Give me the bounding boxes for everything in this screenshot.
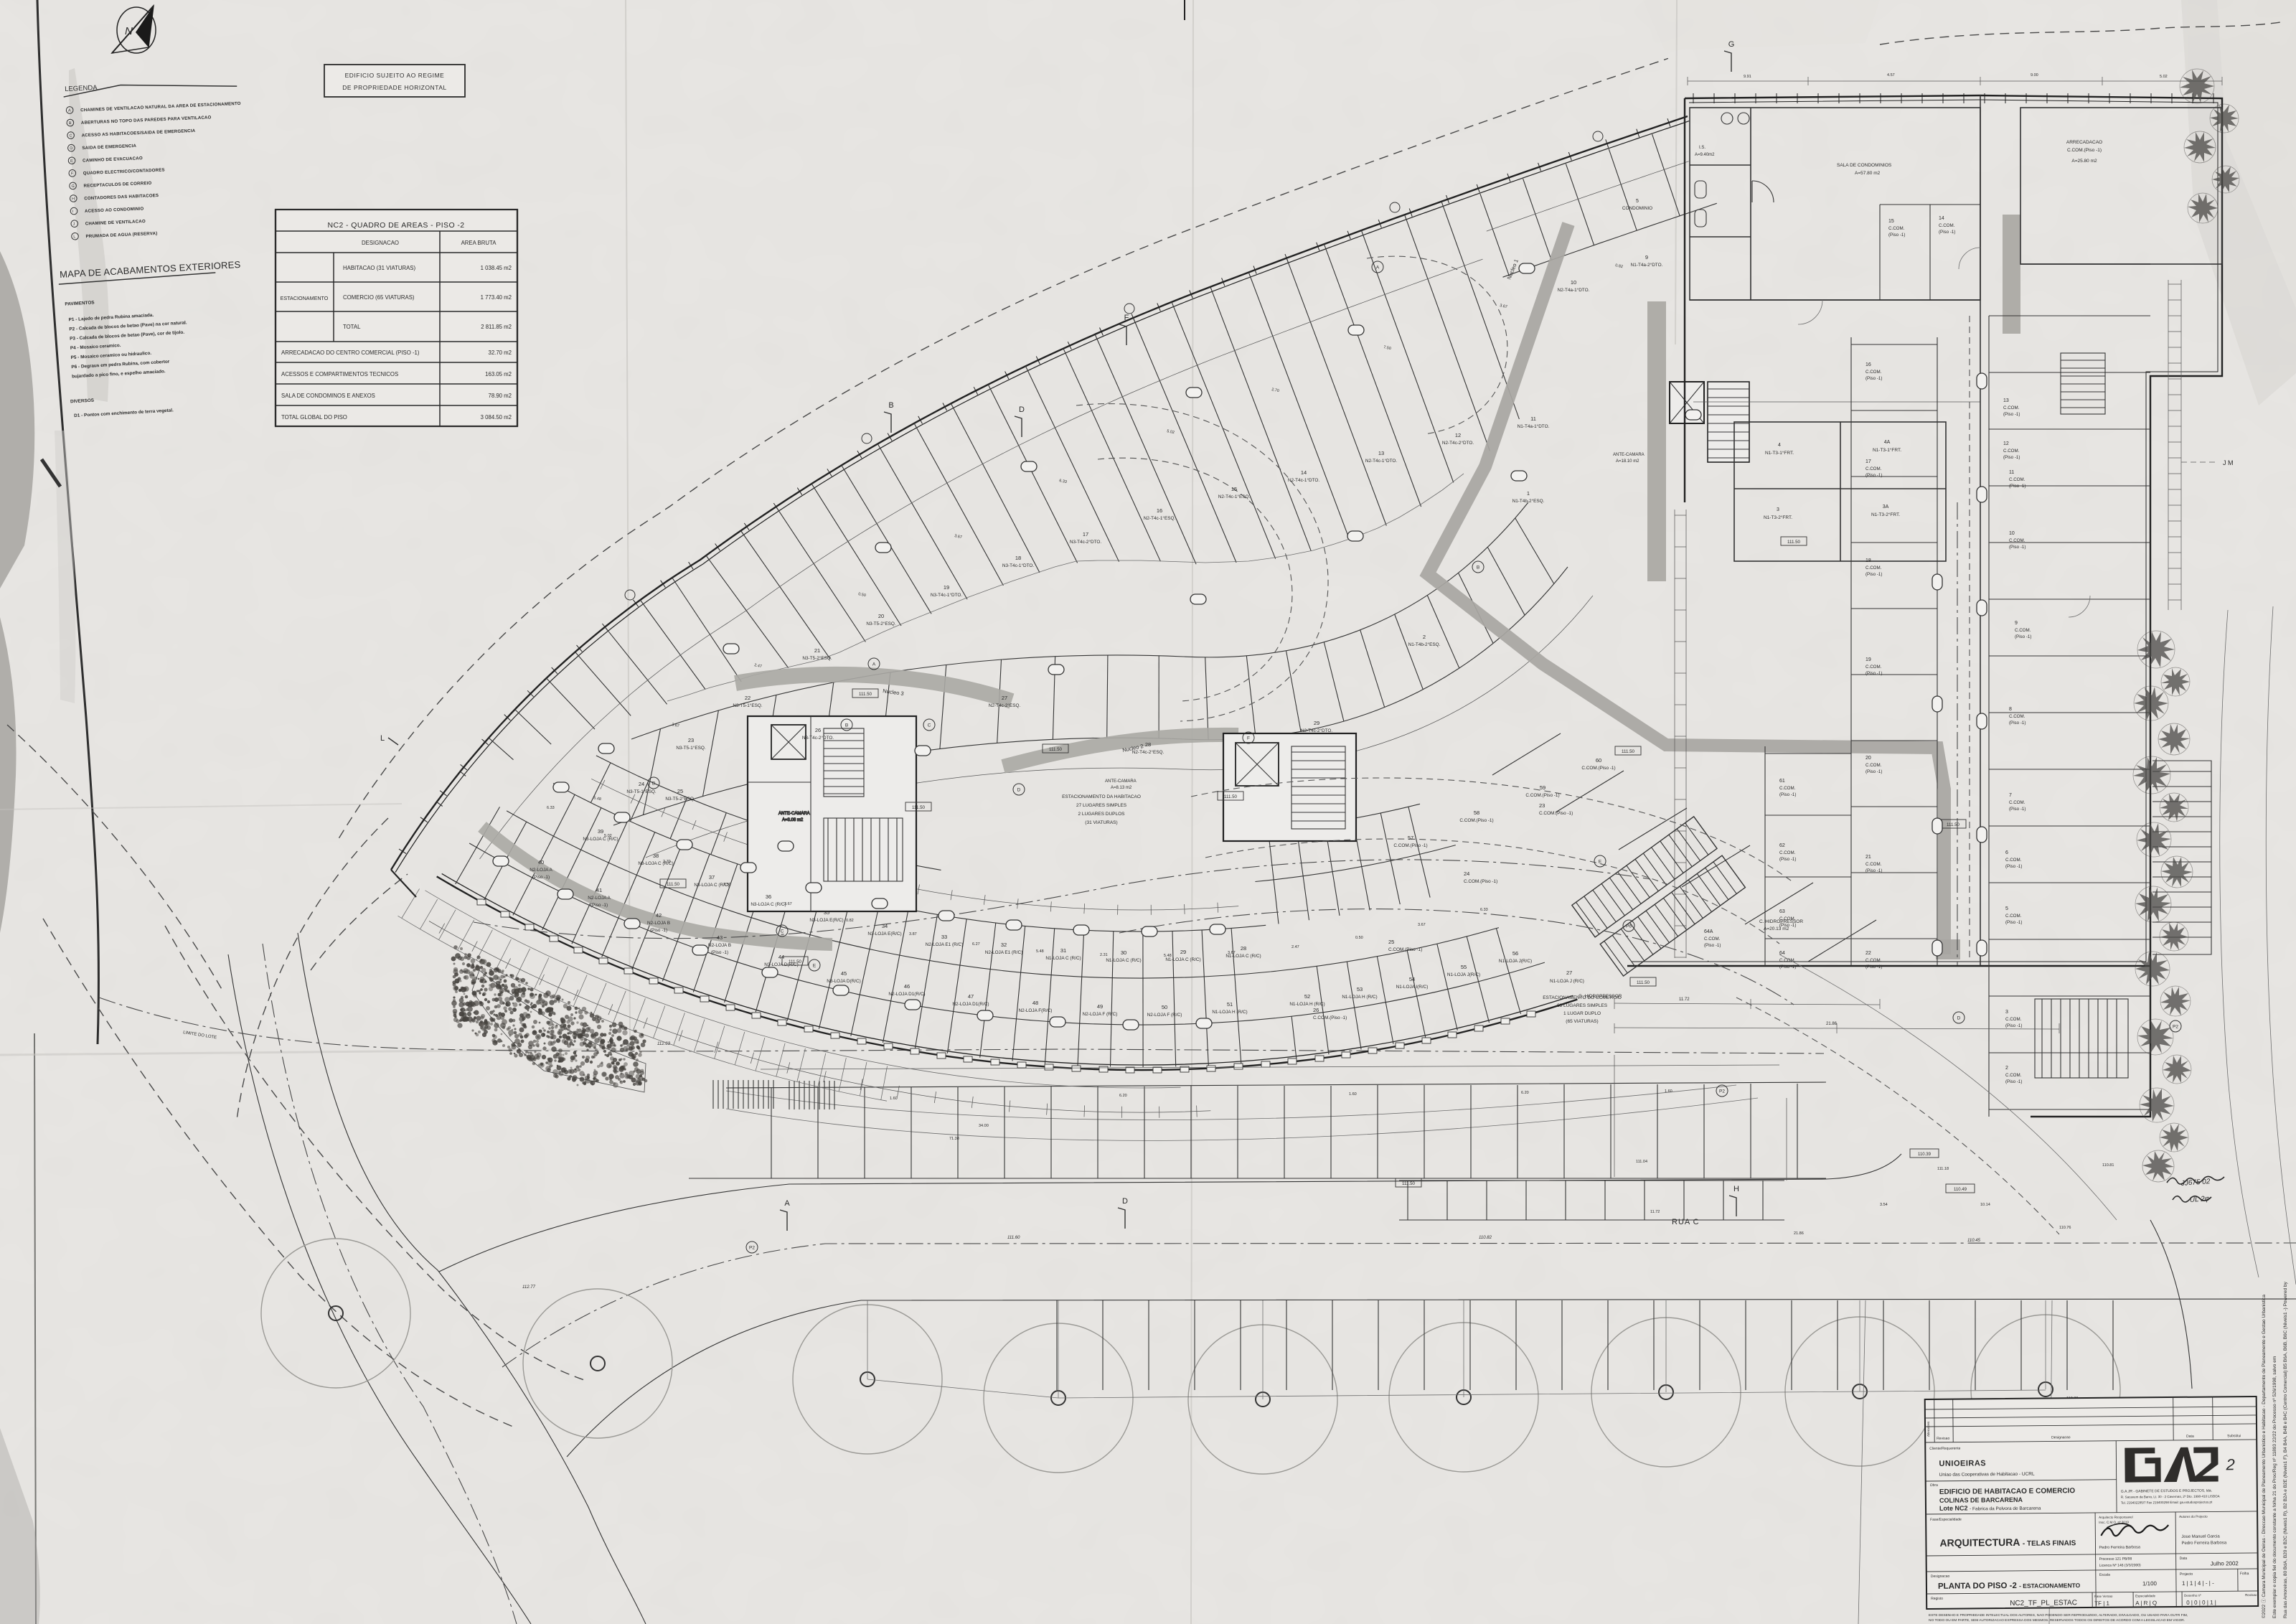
svg-text:1 LUGAR DUPLO: 1 LUGAR DUPLO xyxy=(1563,1011,1601,1016)
svg-text:22: 22 xyxy=(745,695,751,701)
svg-text:36: 36 xyxy=(766,893,771,900)
svg-text:C.COM.(Piso -1): C.COM.(Piso -1) xyxy=(1388,947,1422,952)
svg-text:78.90 m2: 78.90 m2 xyxy=(488,393,512,399)
svg-text:C.COM.: C.COM. xyxy=(1939,223,1955,228)
svg-text:39: 39 xyxy=(598,828,603,835)
svg-text:N2-LOJA E1 (R/C): N2-LOJA E1 (R/C) xyxy=(926,942,964,947)
svg-text:111.18: 111.18 xyxy=(1937,1167,1949,1171)
svg-text:6.27: 6.27 xyxy=(972,942,980,947)
svg-text:N2-LOJA A: N2-LOJA A xyxy=(530,868,552,873)
svg-text:111.50: 111.50 xyxy=(1402,1181,1416,1186)
svg-text:110.82: 110.82 xyxy=(1479,1236,1492,1240)
svg-text:17: 17 xyxy=(1865,459,1871,464)
svg-text:(Piso -1): (Piso -1) xyxy=(1865,473,1882,478)
svg-text:12: 12 xyxy=(1455,432,1461,438)
svg-text:A=3.08 m2: A=3.08 m2 xyxy=(782,818,804,822)
svg-text:52: 52 xyxy=(1304,993,1310,1000)
svg-text:H: H xyxy=(1733,1185,1739,1193)
svg-text:C.COM.: C.COM. xyxy=(2005,858,2022,863)
svg-text:C.COM.: C.COM. xyxy=(2009,800,2026,805)
svg-text:1 773.40 m2: 1 773.40 m2 xyxy=(481,294,512,301)
svg-text:N3-T4c-2°DTO.: N3-T4c-2°DTO. xyxy=(802,735,834,741)
svg-text:DE PROPRIEDADE HORIZONTAL: DE PROPRIEDADE HORIZONTAL xyxy=(342,84,447,91)
svg-text:11: 11 xyxy=(1530,416,1536,422)
svg-text:N3-T4c-2°DTO.: N3-T4c-2°DTO. xyxy=(1070,539,1102,545)
svg-text:C.COM.: C.COM. xyxy=(1865,958,1882,963)
svg-text:(Piso -1): (Piso -1) xyxy=(2009,484,2026,489)
svg-text:9.91: 9.91 xyxy=(1744,75,1751,79)
svg-text:CONDOMINIO: CONDOMINIO xyxy=(1622,206,1652,211)
svg-text:C.COM.: C.COM. xyxy=(1865,763,1882,768)
svg-text:2 LUGARES DUPLOS: 2 LUGARES DUPLOS xyxy=(1078,812,1125,817)
svg-text:26: 26 xyxy=(1313,1007,1319,1013)
svg-text:C. HIDROPRESSOR: C. HIDROPRESSOR xyxy=(1759,919,1803,924)
svg-text:N2-T4c-2°DTO.: N2-T4c-2°DTO. xyxy=(1442,440,1474,446)
svg-text:B: B xyxy=(69,121,72,126)
svg-text:C: C xyxy=(928,723,931,728)
svg-text:71.38: 71.38 xyxy=(949,1137,959,1141)
svg-text:3.87: 3.87 xyxy=(909,932,917,937)
svg-text:Escala: Escala xyxy=(2099,1573,2110,1577)
svg-text:9: 9 xyxy=(1645,254,1648,261)
svg-text:1 038.45 m2: 1 038.45 m2 xyxy=(481,265,512,271)
svg-text:5.48: 5.48 xyxy=(1164,954,1172,958)
svg-text:UNIOEIRAS: UNIOEIRAS xyxy=(1939,1459,1986,1468)
svg-text:N1-LOJA C (R/C): N1-LOJA C (R/C) xyxy=(1106,958,1141,963)
svg-text:51: 51 xyxy=(1227,1001,1233,1008)
svg-text:N3-LOJA D(R/C): N3-LOJA D(R/C) xyxy=(827,979,861,984)
svg-text:(Piso -1): (Piso -1) xyxy=(2009,721,2026,726)
svg-text:3: 3 xyxy=(2005,1010,2008,1015)
svg-text:N3-T5-1°ESQ.: N3-T5-1°ESQ. xyxy=(733,703,762,708)
svg-text:TOTAL GLOBAL DO PISO: TOTAL GLOBAL DO PISO xyxy=(281,414,347,421)
svg-text:P2: P2 xyxy=(749,1246,755,1251)
svg-text:Pedro Ferreira Barbosa: Pedro Ferreira Barbosa xyxy=(2099,1545,2140,1550)
svg-text:ARRECADACAO: ARRECADACAO xyxy=(2066,140,2102,145)
svg-text:56: 56 xyxy=(1512,950,1518,957)
svg-text:4: 4 xyxy=(1778,443,1781,448)
svg-text:N1-T4b-2°ESQ.: N1-T4b-2°ESQ. xyxy=(1512,498,1545,504)
svg-text:16: 16 xyxy=(1865,362,1871,367)
svg-text:42: 42 xyxy=(656,912,662,919)
svg-text:ANTE-CAMARA: ANTE-CAMARA xyxy=(1105,779,1137,784)
svg-text:ACESSOS E COMPARTIMENTOS TECNI: ACESSOS E COMPARTIMENTOS TECNICOS xyxy=(281,371,398,377)
svg-text:J: J xyxy=(72,222,75,227)
svg-text:N1-T3-1°FRT.: N1-T3-1°FRT. xyxy=(1873,447,1901,453)
svg-text:DESIGNACAO: DESIGNACAO xyxy=(362,240,399,246)
svg-text:23: 23 xyxy=(1539,802,1545,809)
svg-text:N2-LOJA D1(R/C): N2-LOJA D1(R/C) xyxy=(952,1002,989,1007)
svg-text:33: 33 xyxy=(941,934,947,940)
svg-text:SALA DE CONDOMINIOS: SALA DE CONDOMINIOS xyxy=(1837,163,1892,168)
svg-text:63 LUGARES SIMPLES: 63 LUGARES SIMPLES xyxy=(1557,1003,1608,1008)
svg-text:N1-T3-2°FRT.: N1-T3-2°FRT. xyxy=(1871,512,1900,517)
svg-text:Arquitecto Responsavel: Arquitecto Responsavel xyxy=(2099,1515,2133,1519)
svg-text:N2-T4c-1°ESQ.: N2-T4c-1°ESQ. xyxy=(1218,494,1251,499)
svg-text:32: 32 xyxy=(1001,942,1007,948)
svg-text:111.50: 111.50 xyxy=(1224,794,1238,799)
svg-text:48: 48 xyxy=(1032,1000,1038,1006)
svg-text:37: 37 xyxy=(709,874,715,881)
svg-text:N1-LOJA C (R/C): N1-LOJA C (R/C) xyxy=(1045,956,1081,961)
svg-text:41: 41 xyxy=(596,887,602,893)
svg-text:1 | 1 | 4 | - | -: 1 | 1 | 4 | - | - xyxy=(2182,1580,2214,1586)
svg-text:C.COM.: C.COM. xyxy=(2009,714,2026,719)
svg-text:A=18.10 m2: A=18.10 m2 xyxy=(1616,459,1639,464)
svg-text:P6: P6 xyxy=(1626,924,1632,929)
svg-text:21.86: 21.86 xyxy=(1794,1231,1804,1236)
svg-text:NC2_TF_PL_ESTAC: NC2_TF_PL_ESTAC xyxy=(2010,1599,2077,1607)
svg-text:P2: P2 xyxy=(1719,1089,1725,1094)
svg-text:ESTACIONAMENTO DA HABITACAO: ESTACIONAMENTO DA HABITACAO xyxy=(1062,794,1141,799)
svg-text:EDIFICIO SUJEITO AO REGIME: EDIFICIO SUJEITO AO REGIME xyxy=(345,72,445,79)
svg-text:11.72: 11.72 xyxy=(1679,998,1690,1002)
svg-text:28: 28 xyxy=(1241,945,1246,952)
svg-text:111.04: 111.04 xyxy=(1636,1160,1647,1164)
svg-text:E: E xyxy=(1599,860,1602,865)
svg-text:(Piso -1): (Piso -1) xyxy=(2005,864,2022,869)
svg-text:H: H xyxy=(72,197,75,201)
svg-text:62: 62 xyxy=(1779,843,1785,848)
svg-text:A: A xyxy=(784,1199,790,1208)
svg-text:Substitui: Substitui xyxy=(2227,1434,2241,1438)
svg-text:Registo: Registo xyxy=(1931,1597,1943,1601)
svg-text:27 LUGARES SIMPLES: 27 LUGARES SIMPLES xyxy=(1076,803,1127,808)
svg-text:27: 27 xyxy=(1566,970,1572,976)
svg-text:N2-LOJA E1 (R/C): N2-LOJA E1 (R/C) xyxy=(985,950,1023,955)
svg-text:C.COM.: C.COM. xyxy=(2015,628,2031,633)
svg-text:B: B xyxy=(1477,565,1479,571)
svg-text:(Piso -1): (Piso -1) xyxy=(1779,792,1796,797)
svg-text:(Piso -1): (Piso -1) xyxy=(1779,964,1796,970)
svg-text:N1-T3-2°FRT.: N1-T3-2°FRT. xyxy=(1764,515,1792,520)
svg-text:(Piso -1): (Piso -1) xyxy=(1865,964,1882,970)
svg-text:1.60: 1.60 xyxy=(890,1097,898,1101)
svg-text:Pedro Ferreira Barbosa: Pedro Ferreira Barbosa xyxy=(2181,1541,2226,1546)
svg-text:F: F xyxy=(1124,314,1129,322)
svg-text:2.31: 2.31 xyxy=(1100,953,1108,957)
svg-text:(Piso -1): (Piso -1) xyxy=(2015,634,2031,639)
svg-text:3A: 3A xyxy=(1883,504,1889,510)
svg-text:38: 38 xyxy=(653,853,659,859)
svg-text:6.33: 6.33 xyxy=(547,806,555,810)
svg-text:55: 55 xyxy=(1461,964,1467,970)
svg-text:UL 2φ: UL 2φ xyxy=(2189,1195,2210,1204)
svg-text:ANTE-CAMARA: ANTE-CAMARA xyxy=(778,812,810,816)
svg-text:COLINAS DE BARCARENA: COLINAS DE BARCARENA xyxy=(1939,1496,2023,1504)
svg-text:B: B xyxy=(845,723,848,728)
svg-text:N3-LOJA C (R/C): N3-LOJA C (R/C) xyxy=(583,837,618,842)
svg-text:C.COM.(Piso -1): C.COM.(Piso -1) xyxy=(2067,148,2102,153)
svg-text:Data: Data xyxy=(2186,1435,2194,1439)
svg-text:3.67: 3.67 xyxy=(1418,923,1426,927)
svg-text:C.COM.: C.COM. xyxy=(1888,226,1905,231)
svg-text:N2-T4c-1°DTO.: N2-T4c-1°DTO. xyxy=(1288,477,1320,483)
svg-text:TOTAL: TOTAL xyxy=(343,324,361,330)
svg-text:45: 45 xyxy=(841,970,847,977)
svg-text:Obra: Obra xyxy=(1930,1483,1938,1488)
svg-text:3.67: 3.67 xyxy=(1228,951,1236,955)
svg-text:(Piso -1): (Piso -1) xyxy=(2003,455,2020,460)
svg-text:46: 46 xyxy=(904,983,910,990)
svg-text:0.50: 0.50 xyxy=(1355,936,1363,940)
svg-text:Licenca Nº 146 (3/3/2000): Licenca Nº 146 (3/3/2000) xyxy=(2099,1563,2141,1568)
svg-text:2: 2 xyxy=(2005,1066,2008,1071)
svg-text:111.60: 111.60 xyxy=(1007,1236,1020,1240)
svg-text:N2-LOJA F(R/C): N2-LOJA F(R/C) xyxy=(1019,1008,1053,1013)
svg-text:LEGENDA: LEGENDA xyxy=(65,84,98,93)
svg-text:G: G xyxy=(1728,40,1735,49)
svg-text:57: 57 xyxy=(1408,835,1413,841)
svg-text:N1-LOJA H (R/C): N1-LOJA H (R/C) xyxy=(1342,995,1377,1000)
svg-text:Julho 2002: Julho 2002 xyxy=(2211,1560,2239,1567)
svg-text:11.72: 11.72 xyxy=(1650,1210,1660,1214)
svg-text:111.50: 111.50 xyxy=(1637,980,1650,985)
svg-text:N3-T5-2°ESQ.: N3-T5-2°ESQ. xyxy=(665,796,695,802)
svg-text:13: 13 xyxy=(1378,450,1384,456)
svg-text:(Piso -1): (Piso -1) xyxy=(2003,412,2020,417)
svg-text:D: D xyxy=(1122,1197,1128,1206)
svg-text:10: 10 xyxy=(2009,531,2015,536)
svg-text:N1-LOJA C (R/C): N1-LOJA C (R/C) xyxy=(1165,957,1200,962)
svg-text:111.50: 111.50 xyxy=(1622,749,1635,754)
svg-text:6.20: 6.20 xyxy=(1521,1091,1529,1095)
svg-text:C.COM.(Piso -1): C.COM.(Piso -1) xyxy=(1313,1015,1347,1020)
svg-text:C.COM.: C.COM. xyxy=(1865,466,1882,471)
svg-text:7: 7 xyxy=(2009,793,2012,798)
svg-text:18: 18 xyxy=(1865,558,1871,563)
svg-text:0.82: 0.82 xyxy=(846,919,854,923)
svg-text:1/100: 1/100 xyxy=(2142,1580,2158,1587)
svg-text:C.COM.(Piso -1): C.COM.(Piso -1) xyxy=(1393,843,1427,848)
svg-text:(65 VIATURAS): (65 VIATURAS) xyxy=(1566,1019,1598,1024)
svg-text:2: 2 xyxy=(1423,634,1426,640)
svg-text:111.50: 111.50 xyxy=(1787,540,1801,545)
svg-text:29: 29 xyxy=(1314,720,1319,726)
svg-text:ESTACIONAMENTO DO COMERCIO: ESTACIONAMENTO DO COMERCIO xyxy=(1543,995,1622,1000)
svg-text:10: 10 xyxy=(1571,279,1576,286)
svg-text:5: 5 xyxy=(2005,906,2008,911)
svg-text:N2-T4c-1°DTO.: N2-T4c-1°DTO. xyxy=(1365,458,1398,464)
svg-text:10.14: 10.14 xyxy=(1980,1203,1990,1207)
svg-text:A=57.80 m2: A=57.80 m2 xyxy=(1855,171,1881,176)
svg-text:29: 29 xyxy=(1180,949,1186,955)
svg-text:N2-LOJA F (R/C): N2-LOJA F (R/C) xyxy=(1147,1013,1182,1018)
svg-text:2: 2 xyxy=(2225,1455,2234,1473)
svg-text:N1-T4a-2°DTO.: N1-T4a-2°DTO. xyxy=(1631,262,1663,268)
svg-text:C.COM.: C.COM. xyxy=(1779,786,1796,791)
svg-text:32.70 m2: 32.70 m2 xyxy=(488,349,512,356)
svg-text:E: E xyxy=(70,159,73,164)
svg-text:19: 19 xyxy=(944,584,949,591)
svg-text:A | R | Q: A | R | Q xyxy=(2135,1600,2157,1606)
svg-text:(Piso -1): (Piso -1) xyxy=(591,903,608,908)
svg-text:21: 21 xyxy=(814,647,820,654)
svg-text:N3-T4c-1°DTO.: N3-T4c-1°DTO. xyxy=(1002,563,1035,568)
svg-text:24: 24 xyxy=(1464,870,1469,877)
svg-text:2.47: 2.47 xyxy=(1291,945,1299,949)
svg-text:6.20: 6.20 xyxy=(1119,1094,1127,1098)
svg-text:Alteracoes: Alteracoes xyxy=(1926,1421,1930,1437)
svg-text:C.COM.(Piso -1): C.COM.(Piso -1) xyxy=(1464,879,1497,884)
svg-text:Rua das Amoreiras, 80 BdA, B2: Rua das Amoreiras, 80 BdA, B20 e B2C (Ni… xyxy=(2283,1281,2288,1618)
svg-text:111.50: 111.50 xyxy=(859,692,872,697)
svg-text:20: 20 xyxy=(1865,756,1871,761)
svg-text:21.86: 21.86 xyxy=(1826,1022,1838,1026)
svg-text:C.COM.: C.COM. xyxy=(2005,914,2022,919)
svg-text:L: L xyxy=(73,235,75,239)
svg-text:Este exemplar e copia fiel do: Este exemplar e copia fiel do documento … xyxy=(2272,1356,2277,1618)
svg-text:4.57: 4.57 xyxy=(1887,73,1895,78)
svg-text:5.48: 5.48 xyxy=(1036,949,1044,954)
svg-text:(Piso -1): (Piso -1) xyxy=(2005,1023,2022,1028)
svg-text:23: 23 xyxy=(688,737,694,743)
svg-text:30: 30 xyxy=(1121,949,1126,956)
svg-text:N2-LOJA F (R/C): N2-LOJA F (R/C) xyxy=(1083,1012,1118,1017)
svg-text:C.COM.(Piso -1): C.COM.(Piso -1) xyxy=(1581,766,1615,771)
svg-text:9.00: 9.00 xyxy=(2031,73,2038,78)
svg-text:C.COM.: C.COM. xyxy=(2009,538,2026,543)
svg-text:C: C xyxy=(781,929,784,934)
svg-text:17: 17 xyxy=(1083,531,1088,538)
svg-text:26: 26 xyxy=(815,727,821,733)
svg-text:110.76: 110.76 xyxy=(2059,1226,2071,1230)
svg-text:(Piso -1): (Piso -1) xyxy=(1939,230,1955,235)
svg-text:63: 63 xyxy=(1779,909,1785,914)
svg-text:Desenho nº: Desenho nº xyxy=(2184,1594,2201,1597)
svg-text:TF | 1: TF | 1 xyxy=(2094,1600,2109,1607)
svg-text:N2-T4c-2°DTO.: N2-T4c-2°DTO. xyxy=(1301,728,1333,733)
svg-text:31: 31 xyxy=(1060,947,1066,954)
svg-text:N1-T3-1°FRT.: N1-T3-1°FRT. xyxy=(1765,450,1794,456)
svg-text:21: 21 xyxy=(1865,855,1871,860)
svg-text:(Piso -1): (Piso -1) xyxy=(1865,572,1882,577)
svg-text:(Piso -1): (Piso -1) xyxy=(1865,671,1882,676)
svg-text:A: A xyxy=(1376,266,1380,271)
svg-text:8: 8 xyxy=(2009,707,2012,712)
svg-text:6: 6 xyxy=(2005,850,2008,855)
svg-text:1: 1 xyxy=(1527,490,1530,497)
svg-text:C.COM.: C.COM. xyxy=(2009,477,2026,482)
svg-text:111.50: 111.50 xyxy=(912,805,926,810)
svg-text:50: 50 xyxy=(1162,1004,1167,1010)
svg-text:C.COM.(Piso -1): C.COM.(Piso -1) xyxy=(1459,818,1493,823)
svg-text:N2-LOJA B: N2-LOJA B xyxy=(708,943,731,948)
svg-text:1.60: 1.60 xyxy=(1665,1089,1672,1094)
svg-text:54: 54 xyxy=(1409,976,1415,982)
svg-text:N2-LOJA D1(R/C): N2-LOJA D1(R/C) xyxy=(888,992,925,997)
svg-text:22: 22 xyxy=(1865,951,1871,956)
svg-text:(Piso -1): (Piso -1) xyxy=(650,928,667,933)
svg-text:C.COM.: C.COM. xyxy=(2003,405,2020,410)
svg-text:N3-T5-1°ESQ.: N3-T5-1°ESQ. xyxy=(676,745,705,751)
svg-text:N1-LOJA J (R/C): N1-LOJA J (R/C) xyxy=(1550,979,1584,984)
svg-text:N3-T5-1°ESQ.: N3-T5-1°ESQ. xyxy=(626,789,656,794)
svg-text:111.50: 111.50 xyxy=(1049,747,1063,752)
svg-text:C.COM.(Piso -1): C.COM.(Piso -1) xyxy=(1539,811,1573,816)
svg-text:N: N xyxy=(125,25,133,37)
svg-text:AREA BRUTA: AREA BRUTA xyxy=(461,240,497,246)
svg-text:Fase/Especialidade: Fase/Especialidade xyxy=(1930,1518,1962,1522)
svg-text:Fase Versao: Fase Versao xyxy=(2094,1595,2113,1598)
svg-text:(Piso -1): (Piso -1) xyxy=(2009,807,2026,812)
svg-text:SALA DE CONDOMINOS E ANEXOS: SALA DE CONDOMINOS E ANEXOS xyxy=(281,393,375,399)
svg-text:58: 58 xyxy=(1474,809,1479,816)
svg-text:A: A xyxy=(68,108,71,113)
svg-text:NO TODO OU EM PARTE, SEM AUTOR: NO TODO OU EM PARTE, SEM AUTORIZACAO EXP… xyxy=(1929,1618,2185,1623)
svg-text:16: 16 xyxy=(1157,507,1162,514)
svg-text:28: 28 xyxy=(1145,741,1151,748)
svg-text:3.67: 3.67 xyxy=(784,902,792,906)
svg-text:EDIFICIO DE HABITACAO E COMERC: EDIFICIO DE HABITACAO E COMERCIO xyxy=(1939,1487,2076,1496)
svg-text:Revisao: Revisao xyxy=(2245,1593,2257,1597)
svg-text:2 811.85 m2: 2 811.85 m2 xyxy=(481,324,512,330)
svg-text:D: D xyxy=(1019,405,1025,414)
svg-text:27: 27 xyxy=(1002,695,1007,701)
svg-text:(Piso -1): (Piso -1) xyxy=(2005,920,2022,925)
svg-text:110.45: 110.45 xyxy=(1967,1239,1981,1243)
svg-text:N1-LOJA I(R/C): N1-LOJA I(R/C) xyxy=(1396,985,1429,990)
svg-text:NC2 - QUADRO DE AREAS - PISO -: NC2 - QUADRO DE AREAS - PISO -2 xyxy=(328,221,465,230)
svg-text:N3-LOJA E(R/C): N3-LOJA E(R/C) xyxy=(867,931,901,937)
svg-text:20: 20 xyxy=(878,613,884,619)
svg-text:N1-T4a-1°DTO.: N1-T4a-1°DTO. xyxy=(1518,423,1550,429)
svg-text:Designacao: Designacao xyxy=(1931,1574,1950,1579)
svg-text:110.49: 110.49 xyxy=(1954,1188,1967,1192)
svg-text:11: 11 xyxy=(2009,470,2014,475)
svg-text:163.05 m2: 163.05 m2 xyxy=(485,371,512,377)
svg-text:Cliente/Requerente: Cliente/Requerente xyxy=(1929,1447,1960,1451)
svg-text:A=25.80 m2: A=25.80 m2 xyxy=(2071,159,2097,164)
svg-text:111.50: 111.50 xyxy=(1947,822,1960,827)
svg-text:40: 40 xyxy=(538,859,544,865)
svg-text:110.39: 110.39 xyxy=(1918,1153,1932,1157)
svg-text:D: D xyxy=(70,146,72,151)
svg-text:(Piso -1): (Piso -1) xyxy=(2009,545,2026,550)
svg-text:P2: P2 xyxy=(2173,1025,2178,1030)
svg-text:L: L xyxy=(380,734,385,743)
svg-text:2.70: 2.70 xyxy=(663,860,671,864)
svg-text:34: 34 xyxy=(882,923,888,929)
svg-text:3.54: 3.54 xyxy=(1880,1203,1888,1207)
svg-text:N2-T4c-1°ESQ.: N2-T4c-1°ESQ. xyxy=(1144,515,1176,521)
svg-text:25: 25 xyxy=(1388,939,1394,945)
svg-text:Projecto: Projecto xyxy=(2180,1572,2193,1577)
svg-text:(31 VIATURAS): (31 VIATURAS) xyxy=(1085,820,1117,825)
svg-text:(Piso -1): (Piso -1) xyxy=(1865,868,1882,873)
svg-text:(Piso -1): (Piso -1) xyxy=(1865,376,1882,381)
svg-text:G: G xyxy=(71,184,75,189)
svg-text:E: E xyxy=(813,964,817,969)
svg-text:N3-T5-2°ESQ.: N3-T5-2°ESQ. xyxy=(866,621,895,626)
svg-text:C.COM.: C.COM. xyxy=(1779,850,1796,855)
svg-text:C.COM.: C.COM. xyxy=(1865,862,1882,867)
svg-text:HABITACAO (31 VIATURAS): HABITACAO (31 VIATURAS) xyxy=(343,265,415,271)
svg-text:Processo 121 PB/98: Processo 121 PB/98 xyxy=(2099,1557,2132,1561)
svg-text:(Piso -1): (Piso -1) xyxy=(2005,1079,2022,1084)
svg-text:A=8.13 m2: A=8.13 m2 xyxy=(1111,786,1132,790)
svg-text:(Piso -1): (Piso -1) xyxy=(1779,857,1796,862)
svg-text:©2022 ⓘ Camara Municipa: ©2022 ⓘ Camara Municipal de Oeiras - Dir… xyxy=(2261,1295,2267,1618)
svg-text:N2-T4c-2°ESQ.: N2-T4c-2°ESQ. xyxy=(989,703,1021,708)
svg-text:Data: Data xyxy=(2180,1557,2188,1561)
svg-text:ARRECADACAO DO CENTRO COMERCIA: ARRECADACAO DO CENTRO COMERCIAL (PISO -1… xyxy=(281,349,420,356)
svg-text:(Piso -1): (Piso -1) xyxy=(1888,233,1905,238)
svg-text:B: B xyxy=(888,401,893,410)
svg-text:C.COM.: C.COM. xyxy=(1865,665,1882,670)
svg-text:N1-LOJA H (R/C): N1-LOJA H (R/C) xyxy=(1289,1002,1325,1007)
svg-text:0 | 0 | 0 | 1 |: 0 | 0 | 0 | 1 | xyxy=(2186,1599,2216,1605)
